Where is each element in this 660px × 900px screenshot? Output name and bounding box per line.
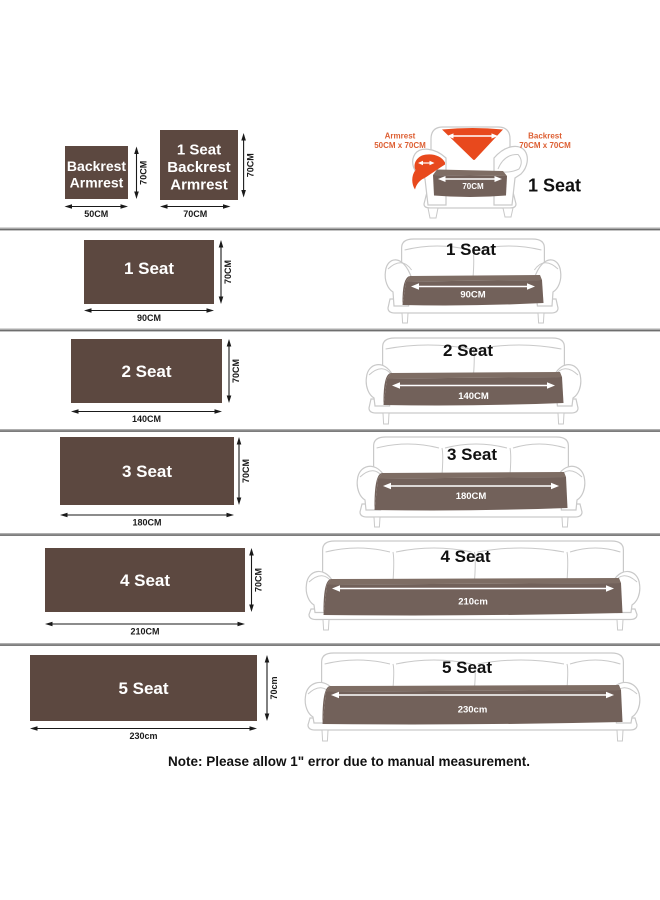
svg-text:3 Seat: 3 Seat <box>122 462 172 481</box>
svg-text:Armrest: Armrest <box>385 132 416 141</box>
svg-text:1 Seat: 1 Seat <box>177 141 221 158</box>
svg-text:210cm: 210cm <box>458 597 488 608</box>
svg-text:5 Seat: 5 Seat <box>442 658 492 677</box>
svg-text:2 Seat: 2 Seat <box>443 341 493 360</box>
svg-text:Backrest: Backrest <box>528 132 562 141</box>
svg-text:70CM: 70CM <box>246 153 256 177</box>
svg-text:230cm: 230cm <box>129 731 157 741</box>
svg-text:70CM: 70CM <box>223 260 233 284</box>
svg-text:Note: Please allow 1" error du: Note: Please allow 1" error due to manua… <box>168 754 530 769</box>
svg-text:Backrest: Backrest <box>67 158 126 174</box>
svg-text:70CM: 70CM <box>183 209 207 219</box>
svg-text:70CM: 70CM <box>231 359 241 383</box>
svg-text:Armrest: Armrest <box>70 174 124 190</box>
svg-text:70CM: 70CM <box>241 459 251 483</box>
svg-text:210CM: 210CM <box>130 627 159 637</box>
svg-text:1 Seat: 1 Seat <box>528 176 581 196</box>
svg-text:180CM: 180CM <box>456 491 487 502</box>
svg-text:2 Seat: 2 Seat <box>121 362 171 381</box>
svg-text:70CM: 70CM <box>462 182 484 191</box>
svg-text:Backrest: Backrest <box>167 159 230 176</box>
svg-text:50CM x 70CM: 50CM x 70CM <box>374 141 426 150</box>
svg-text:70CM: 70CM <box>254 568 264 592</box>
svg-text:3 Seat: 3 Seat <box>447 445 497 464</box>
svg-text:230cm: 230cm <box>458 705 488 716</box>
svg-text:180CM: 180CM <box>132 518 161 528</box>
svg-text:70CM x 70CM: 70CM x 70CM <box>519 141 571 150</box>
svg-text:4 Seat: 4 Seat <box>440 547 490 566</box>
svg-text:90CM: 90CM <box>460 290 485 301</box>
svg-text:70CM: 70CM <box>139 161 149 185</box>
svg-text:Armrest: Armrest <box>170 176 228 193</box>
svg-text:90CM: 90CM <box>137 313 161 323</box>
svg-text:140CM: 140CM <box>132 414 161 424</box>
svg-text:50CM: 50CM <box>84 209 108 219</box>
svg-text:1 Seat: 1 Seat <box>124 259 174 278</box>
svg-text:4 Seat: 4 Seat <box>120 571 170 590</box>
svg-text:140CM: 140CM <box>458 391 489 402</box>
svg-text:70cm: 70cm <box>269 676 279 699</box>
svg-text:5 Seat: 5 Seat <box>118 679 168 698</box>
svg-text:1 Seat: 1 Seat <box>446 240 496 259</box>
